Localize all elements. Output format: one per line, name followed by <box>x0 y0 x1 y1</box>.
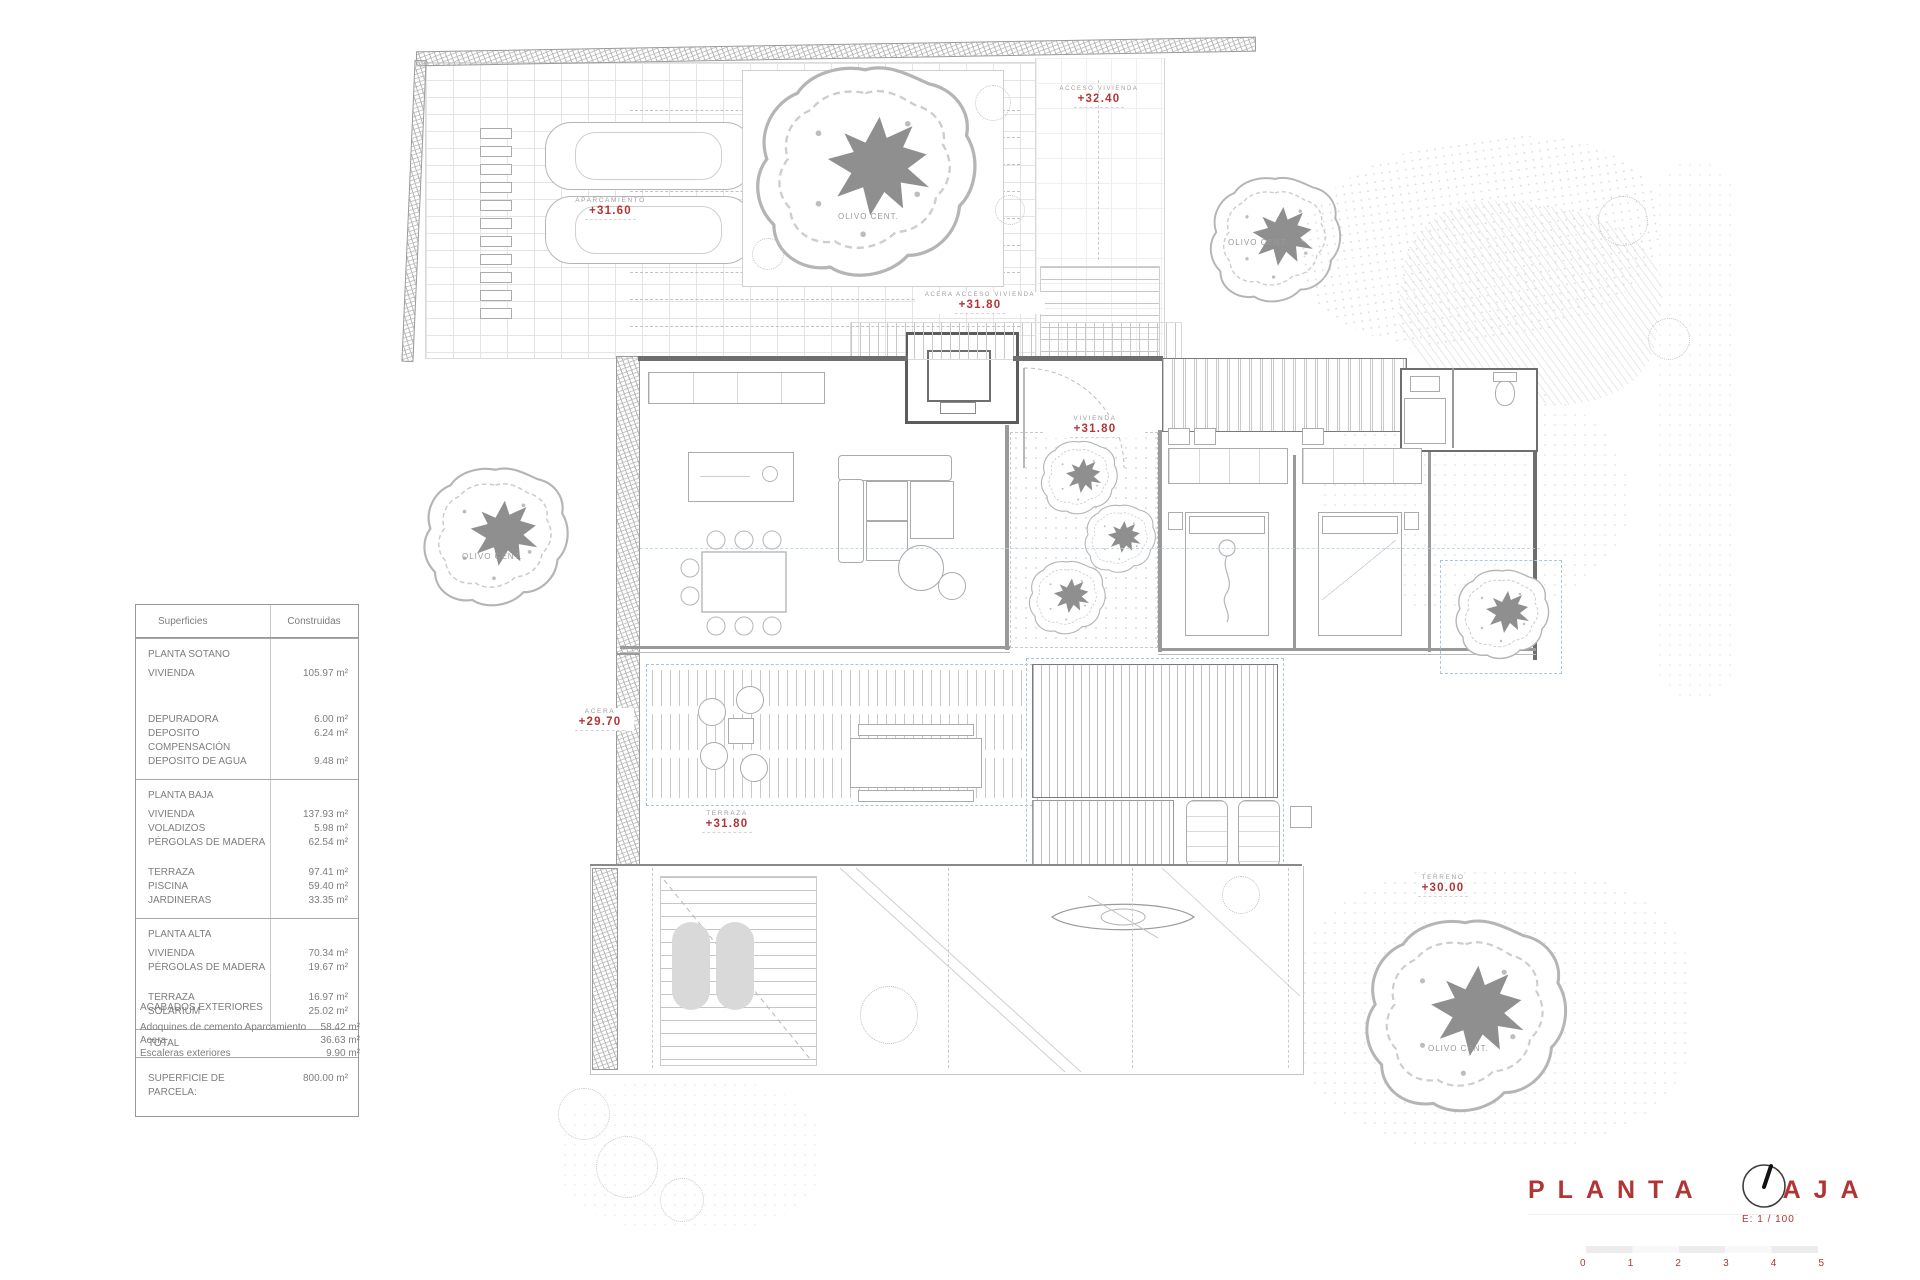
exterior-step <box>480 218 512 229</box>
col-header-superficies: Superficies <box>136 616 270 627</box>
entry-porch-step <box>940 402 976 414</box>
garden-lounger <box>716 922 754 1010</box>
olive-tree <box>1358 912 1573 1127</box>
table-row: VIVIENDA 137.93 m² <box>136 808 358 822</box>
wardrobe <box>1168 448 1288 484</box>
sofa-chaise <box>910 481 954 539</box>
person-resting <box>1192 536 1262 626</box>
living-south-glass <box>620 652 1010 653</box>
nightstand <box>1404 512 1419 530</box>
partition-bed2-bath <box>1428 450 1431 652</box>
level-label-vivienda: VIVIENDA +31.80 <box>1045 415 1145 438</box>
section-planta-baja: PLANTA BAJA VIVIENDA 137.93 m² VOLADIZOS… <box>136 779 358 918</box>
area-name: APARCAMIENTO <box>575 197 646 204</box>
table-row: DEPURADORA 6.00 m² <box>136 713 358 727</box>
section-title: PLANTA SOTANO <box>136 647 358 663</box>
dining-set <box>678 528 810 640</box>
sun-lounger <box>1238 800 1280 868</box>
bed-fold-line <box>1322 540 1396 600</box>
side-table-round <box>938 572 966 600</box>
acera-acceso-paving <box>850 322 1182 360</box>
level-label-acera: ACERA +29.70 <box>566 708 634 731</box>
table-row: JARDINERAS 33.35 m² <box>136 894 358 908</box>
round-chair <box>736 686 764 714</box>
level-value: +31.80 <box>1070 423 1121 438</box>
guide-line <box>652 868 653 1068</box>
level-label-aparcamiento: APARCAMIENTO +31.60 <box>548 197 673 220</box>
round-chair <box>698 698 726 726</box>
flower-scribble <box>975 85 1011 121</box>
exterior-step <box>480 254 512 265</box>
table-row: VOLADIZOS 5.98 m² <box>136 822 358 836</box>
sofa-side <box>838 479 864 563</box>
exterior-step <box>480 182 512 193</box>
area-name: ACERA ACCESO VIVIENDA <box>925 292 1035 298</box>
outdoor-bench <box>858 724 974 736</box>
section-title: PLANTA BAJA <box>136 788 358 804</box>
jardinera-tree <box>1452 566 1552 666</box>
flower-scribble <box>752 238 784 270</box>
level-value: +31.60 <box>585 205 636 220</box>
boundary-wall-left <box>401 60 426 362</box>
section-planta-sotano: PLANTA SOTANO VIVIENDA 105.97 m² DEPURAD… <box>136 638 358 779</box>
slope-dots <box>1655 160 1735 700</box>
exterior-step <box>480 146 512 157</box>
ac-unit <box>1194 428 1216 445</box>
sun-lounger <box>1186 800 1228 868</box>
partition-courtyard-bed1 <box>1158 430 1162 652</box>
main-stairs <box>1162 358 1407 432</box>
toilet <box>1495 380 1515 406</box>
list-item: Acera 36.63 m² <box>140 1034 370 1047</box>
olive-tree-label: OLIVO CENT. <box>838 212 899 221</box>
parcel-label: SUPERFICIE DE PARCELA: <box>136 1072 270 1100</box>
north-arrow-icon <box>1738 1158 1790 1210</box>
olive-tree-label: OLIVO CENT. <box>1428 1044 1489 1053</box>
exterior-step <box>480 308 512 319</box>
level-label-acera-acceso: ACERA ACCESO VIVIENDA +31.80 <box>915 292 1045 314</box>
exterior-step <box>480 200 512 211</box>
nightstand <box>1168 512 1183 530</box>
round-chair <box>700 742 728 770</box>
exterior-step <box>480 272 512 283</box>
ac-unit <box>1302 428 1324 445</box>
partition-bed1-bed2 <box>1293 455 1296 651</box>
list-item: Escaleras exteriores 9.90 m² <box>140 1047 370 1060</box>
overhang-dashed-line <box>640 548 1540 549</box>
wardrobe <box>1302 448 1422 484</box>
area-name: ACERA <box>585 708 615 715</box>
island-line <box>700 476 750 477</box>
garden-west-wall <box>592 868 618 1070</box>
area-name: TERRAZA <box>706 810 748 817</box>
olive-tree <box>418 462 573 617</box>
table-row: PISCINA 59.40 m² <box>136 880 358 894</box>
floor-plan-sheet: APARCAMIENTO +31.60 OLIVO CENT. ACCESO V… <box>0 0 1920 1280</box>
west-garden-wall <box>616 654 640 870</box>
level-value: +29.70 <box>575 716 626 731</box>
parcel-value: 800.00 m² <box>270 1072 358 1100</box>
house-north-wall <box>638 356 908 361</box>
kitchen-counter <box>648 372 825 404</box>
ac-unit <box>1168 428 1190 445</box>
house-north-wall <box>1013 356 1163 361</box>
section-title: PLANTA ALTA <box>136 927 358 943</box>
garden-path-lines <box>820 866 1310 1074</box>
parcel-row: SUPERFICIE DE PARCELA: 800.00 m² <box>136 1057 358 1116</box>
acabados-title: ACABADOS EXTERIORES <box>140 1002 370 1013</box>
table-row: DEPOSITO COMPENSACIÓN 6.24 m² <box>136 727 358 755</box>
exterior-step <box>480 128 512 139</box>
table-row: PÉRGOLAS DE MADERA 19.67 m² <box>136 961 358 975</box>
title-word: PLANTA <box>1528 1176 1706 1205</box>
bed-pillow <box>1189 516 1265 534</box>
scale-numbers: 0 1 2 3 4 5 <box>1580 1258 1824 1269</box>
level-label-terraza: TERRAZA +31.80 <box>692 810 762 833</box>
table-row: TERRAZA 97.41 m² <box>136 866 358 880</box>
toilet-tank <box>1493 372 1517 382</box>
lounger-table <box>1290 806 1312 828</box>
bathroom-sink <box>1410 376 1440 392</box>
level-label-acceso: ACCESO VIVIENDA +32.40 <box>1040 86 1158 108</box>
exterior-step <box>480 290 512 301</box>
garden-lounger <box>672 922 710 1010</box>
olive-tree-label: OLIVO CENT. <box>1228 238 1289 247</box>
list-item: Adoquines de cemento Aparcamiento 58.42 … <box>140 1021 370 1034</box>
guide-line <box>948 868 949 1068</box>
island-sink <box>762 466 778 482</box>
living-south-wall <box>620 646 1010 649</box>
sofa-cushion <box>866 481 908 521</box>
round-chair <box>740 754 768 782</box>
bathroom-shower <box>1404 398 1446 444</box>
flower-scribble <box>995 195 1025 225</box>
kitchen-island <box>688 452 794 502</box>
col-header-construidas: Construidas <box>270 616 358 627</box>
sofa-back <box>838 455 952 481</box>
bed-pillow <box>1322 516 1398 534</box>
pool-deck-slats-lower <box>1032 800 1174 866</box>
guide-line <box>1132 868 1133 1068</box>
terrace-side-table <box>728 718 754 744</box>
exterior-finishes-list: ACABADOS EXTERIORES Adoquines de cemento… <box>140 1002 370 1060</box>
stair-walkline <box>1098 80 1099 260</box>
courtyard-tree <box>1026 558 1108 640</box>
car-window-line <box>575 132 722 180</box>
area-name: VIVIENDA <box>1073 415 1116 422</box>
outdoor-bench <box>858 790 974 802</box>
pool-deck-slats <box>1032 664 1278 798</box>
outdoor-table <box>850 738 982 788</box>
exterior-step <box>480 164 512 175</box>
table-row: PÉRGOLAS DE MADERA 62.54 m² <box>136 836 358 850</box>
slope-speckle <box>560 1080 820 1230</box>
table-header-row: Superficies Construidas <box>136 605 358 638</box>
guide-line <box>1288 868 1289 1068</box>
house-west-wall <box>616 356 640 654</box>
level-value: +31.80 <box>955 299 1006 314</box>
shrub-scribble <box>1598 196 1648 246</box>
drawing-title: PLANTA BAJA <box>1528 1176 1872 1205</box>
bathroom-divider <box>1452 368 1454 448</box>
level-value: +31.80 <box>702 818 753 833</box>
exterior-step <box>480 236 512 247</box>
table-row: DEPOSITO DE AGUA 9.48 m² <box>136 755 358 769</box>
scale-bar <box>1586 1246 1818 1253</box>
table-row: VIVIENDA 105.97 m² <box>136 667 358 681</box>
partition-living-courtyard <box>1005 425 1009 650</box>
scale-text: E: 1 / 100 <box>1742 1214 1795 1225</box>
olive-tree-label: OLIVO CENT. <box>462 552 523 561</box>
table-row: VIVIENDA 70.34 m² <box>136 947 358 961</box>
